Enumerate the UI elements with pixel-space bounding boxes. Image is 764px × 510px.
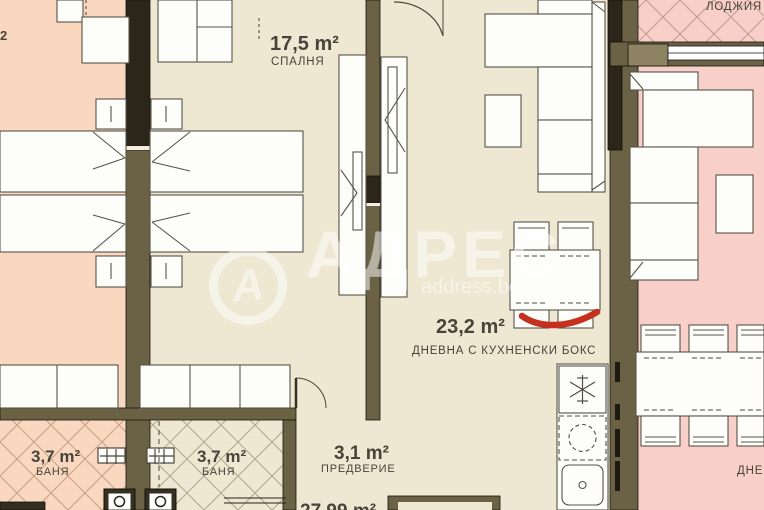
bedroom-name-label: СПАЛНЯ	[271, 56, 324, 68]
nightstand	[151, 99, 182, 129]
dining-set	[636, 325, 764, 446]
hallway-area-label: 3,1 m²	[334, 443, 389, 465]
cutoff-area-fragment-left: 2	[0, 28, 7, 43]
sink-icon	[562, 465, 603, 505]
nightstand	[96, 99, 126, 129]
hallway-name-label: ПРЕДВЕРИЕ	[321, 463, 395, 475]
washbasin-faucet-icon	[147, 448, 174, 464]
bed	[0, 195, 126, 252]
side-table	[485, 95, 521, 147]
living-area-label: 23,2 m²	[436, 316, 505, 339]
bath-left-name-label: БАНЯ	[36, 466, 69, 478]
fridge-snowflake-icon	[559, 366, 606, 413]
washbasin-faucet-icon	[98, 448, 125, 464]
floor-plan: А АДРЕС address.bg 17,5 m² СПАЛНЯ 23,2 m…	[0, 0, 764, 510]
side-table	[716, 175, 753, 233]
bedroom-area-label: 17,5 m²	[270, 33, 339, 56]
wardrobe	[0, 365, 118, 408]
nightstand	[96, 256, 126, 287]
neighbor-living-label: ДНЕ	[737, 465, 763, 477]
toilet-icon	[104, 489, 135, 510]
cutoff-area-fragment-bottom: 27,99 m²	[300, 503, 376, 510]
wardrobe	[140, 365, 290, 408]
wardrobe	[158, 0, 232, 62]
loggia-name-label: ЛОДЖИЯ	[706, 1, 762, 13]
nightstand	[151, 256, 182, 287]
bed	[150, 131, 303, 192]
bath-left-area-label: 3,7 m²	[31, 447, 80, 467]
living-name-label: ДНЕВНА С КУХНЕНСКИ БОКС	[412, 345, 596, 357]
toilet-icon	[145, 489, 176, 510]
bed	[0, 131, 126, 192]
bath-right-area-label: 3,7 m²	[197, 447, 246, 467]
bath-right-name-label: БАНЯ	[202, 466, 235, 478]
bed	[150, 195, 303, 252]
kitchen-block	[557, 364, 608, 510]
floor-plan-drawing	[0, 0, 764, 510]
